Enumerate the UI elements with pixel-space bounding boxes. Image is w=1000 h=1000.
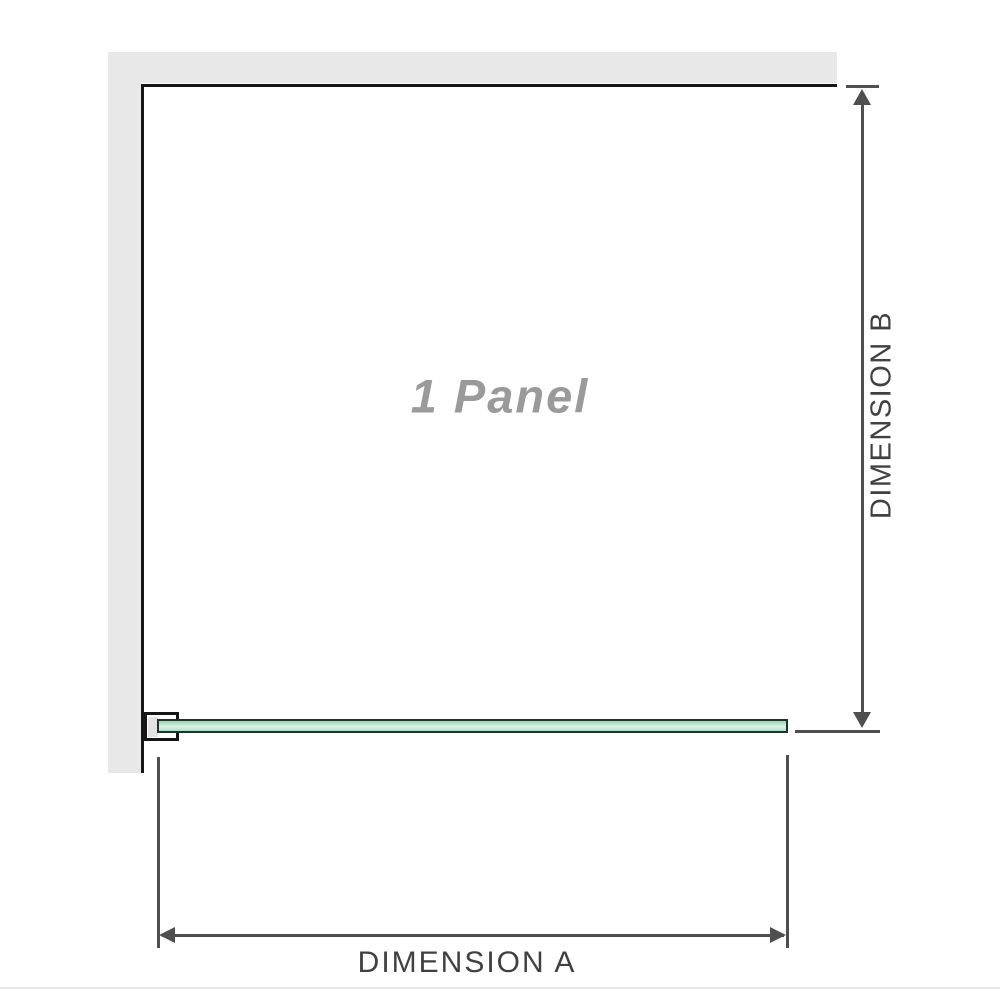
wall-left — [108, 52, 141, 773]
dimension-b-tick-bottom — [795, 730, 880, 733]
enclosure-outline-top — [141, 84, 837, 87]
bottom-divider — [0, 987, 1000, 989]
glass-panel — [157, 719, 788, 733]
dimension-b-label: DIMENSION B — [866, 311, 899, 519]
shower-panel-diagram: 1 Panel DIMENSION B DIMENSION A — [0, 0, 1000, 1000]
dimension-b-tick-top — [846, 85, 879, 88]
wall-top — [108, 52, 837, 83]
dimension-a-extension-left — [157, 757, 160, 948]
enclosure-outline-left — [141, 84, 144, 773]
arrow-up-icon — [853, 89, 871, 105]
arrow-left-icon — [159, 927, 175, 943]
arrow-down-icon — [853, 712, 871, 728]
arrow-right-icon — [770, 927, 786, 943]
dimension-a-label: DIMENSION A — [358, 946, 577, 980]
dimension-a-line — [162, 934, 784, 937]
panel-count-label: 1 Panel — [411, 369, 590, 424]
dimension-b-line — [861, 100, 864, 716]
dimension-a-extension-right — [786, 755, 789, 948]
